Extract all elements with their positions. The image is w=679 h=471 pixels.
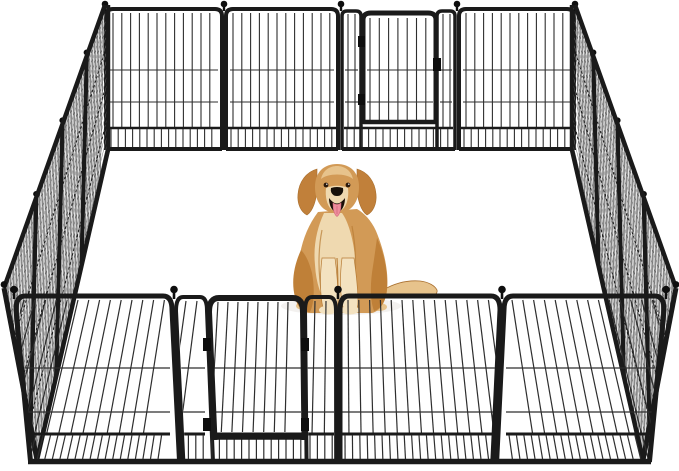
playpen-scene	[0, 0, 679, 471]
product-photo	[0, 0, 679, 471]
